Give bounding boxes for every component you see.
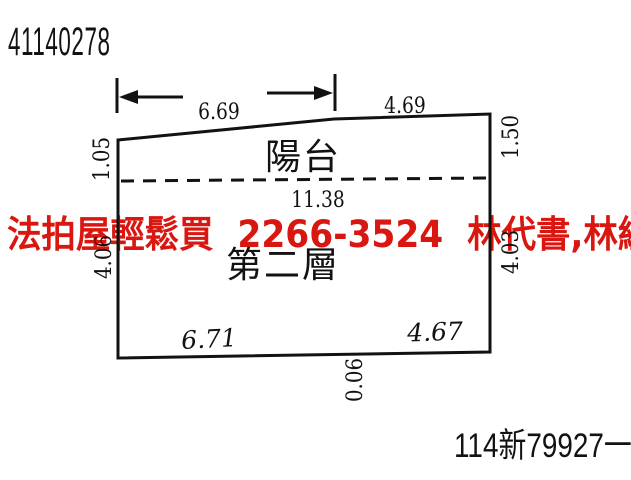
dim-top-width-right: 4.69 bbox=[384, 96, 426, 118]
dim-bottom-width-left: 6.71 bbox=[181, 325, 238, 353]
dim-top-width-left: 6.69 bbox=[198, 102, 240, 124]
balcony-separator-dashed-line bbox=[121, 178, 489, 181]
dimension-arrow-left-head bbox=[119, 90, 138, 104]
balcony-label: 陽台 bbox=[265, 140, 341, 176]
scanned-floor-plan-page: 41140278 6.69 4.69 1.05 1.50 11.38 4.06 … bbox=[0, 0, 631, 480]
case-number: 114新79927一 bbox=[454, 429, 631, 463]
dim-bottom-width-right: 4.67 bbox=[407, 319, 464, 346]
dim-balcony-depth-left: 1.05 bbox=[92, 137, 114, 181]
dim-interior-width: 11.38 bbox=[291, 190, 345, 212]
red-ad-watermark: 法拍屋輕鬆買 2266-3524 林代書,林經理 bbox=[7, 216, 631, 253]
dim-bottom-offset: 0.06 bbox=[345, 358, 367, 402]
dim-balcony-depth-right: 1.50 bbox=[501, 115, 523, 159]
drawing-number: 41140278 bbox=[8, 22, 110, 62]
dimension-arrow-right-head bbox=[314, 86, 333, 100]
